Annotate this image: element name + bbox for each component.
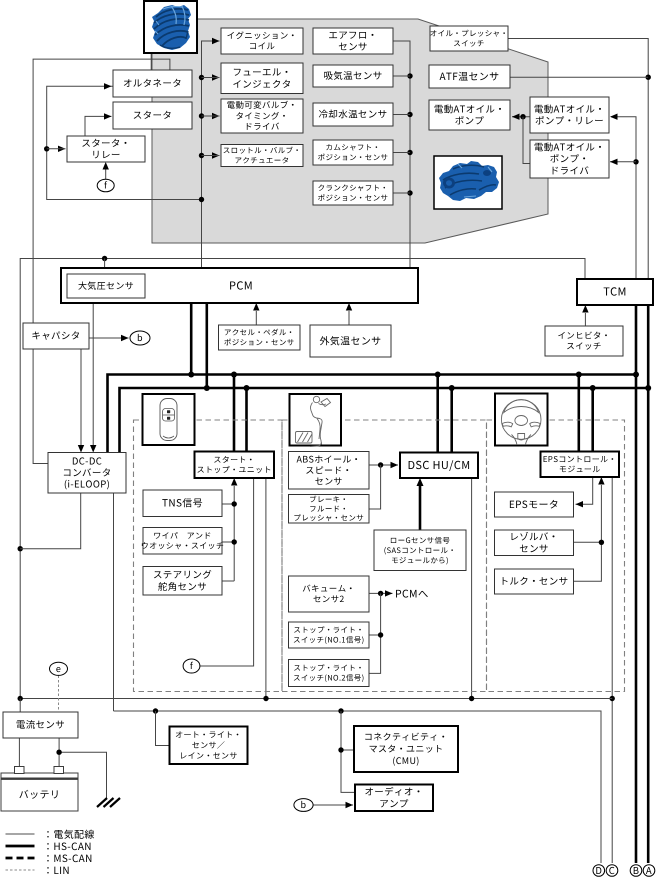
svg-text:ストップ・ユニット: ストップ・ユニット [197, 465, 272, 476]
svg-text:ウオッシャ・スイッチ: ウオッシャ・スイッチ [141, 541, 225, 552]
svg-text:アンプ: アンプ [379, 796, 409, 810]
svg-text:ポジション・センサ: ポジション・センサ [224, 337, 295, 348]
svg-text:EPSモータ: EPSモータ [509, 496, 559, 511]
svg-text:ポンプ・リレー: ポンプ・リレー [535, 113, 604, 127]
svg-text:センサ: センサ [338, 39, 368, 53]
svg-text:リレー: リレー [91, 147, 121, 161]
svg-text:アクチュエータ: アクチュエータ [235, 155, 290, 166]
svg-text:PCM: PCM [229, 278, 253, 294]
svg-text:ドライバ: ドライバ [244, 121, 280, 133]
svg-text:センサ／: センサ／ [192, 740, 225, 751]
svg-text:モジュール: モジュール [559, 464, 601, 475]
svg-text:インジェクタ: インジェクタ [232, 76, 291, 90]
svg-text:バッテリ: バッテリ [19, 786, 60, 801]
svg-text:DSC HU/CM: DSC HU/CM [408, 457, 471, 473]
svg-text:キャパシタ: キャパシタ [31, 328, 80, 342]
svg-text:b: b [301, 798, 307, 811]
svg-text:トルク・センサ: トルク・センサ [500, 574, 569, 588]
svg-text:TNS信号: TNS信号 [162, 495, 203, 510]
svg-text:舵角センサ: 舵角センサ [158, 579, 207, 593]
svg-text:コイル: コイル [249, 40, 276, 52]
svg-text:e: e [56, 662, 61, 675]
svg-text:オルタネータ: オルタネータ [123, 76, 182, 90]
svg-text:スイッチ(NO.2信号): スイッチ(NO.2信号) [293, 672, 365, 683]
svg-text:レイン・センサ: レイン・センサ [179, 751, 237, 762]
svg-text:センサ2: センサ2 [313, 593, 345, 605]
svg-text:吸気温センサ: 吸気温センサ [323, 68, 382, 82]
svg-text:スタータ: スタータ [133, 108, 172, 122]
svg-text:オート・ライト・: オート・ライト・ [175, 730, 242, 741]
svg-text:スイッチ(NO.1信号): スイッチ(NO.1信号) [293, 634, 365, 645]
svg-text:ポジション・センサ: ポジション・センサ [318, 152, 389, 163]
svg-text:ポンプ: ポンプ [455, 113, 485, 127]
svg-text:D: D [595, 863, 602, 877]
svg-text:モジュールから): モジュールから) [391, 555, 449, 566]
svg-text:冷却水温センサ: 冷却水温センサ [319, 107, 388, 121]
svg-text:外気温センサ: 外気温センサ [319, 332, 381, 347]
svg-text:(CMU): (CMU) [392, 754, 419, 767]
svg-text:ドライバ: ドライバ [550, 163, 590, 177]
svg-text:C: C [609, 863, 615, 877]
svg-text:TCM: TCM [603, 284, 627, 300]
svg-text:センサ: センサ [519, 541, 549, 555]
svg-text:電流センサ: 電流センサ [16, 717, 65, 731]
svg-text:b: b [137, 331, 143, 344]
svg-text:センサ: センサ [315, 474, 343, 487]
svg-text:ポジション・センサ: ポジション・センサ [318, 192, 389, 203]
svg-text:(i-ELOOP): (i-ELOOP) [64, 477, 110, 491]
svg-text:：LIN: ：LIN [43, 862, 70, 877]
svg-text:PCMへ: PCMへ [395, 587, 429, 602]
svg-text:スイッチ: スイッチ [566, 340, 601, 352]
svg-text:A: A [646, 863, 652, 877]
svg-text:プレッシャ・センサ: プレッシャ・センサ [293, 513, 364, 524]
svg-text:ATF温センサ: ATF温センサ [439, 68, 499, 83]
svg-text:スイッチ: スイッチ [453, 38, 484, 49]
svg-text:B: B [633, 863, 640, 877]
svg-text:大気圧センサ: 大気圧センサ [78, 279, 134, 292]
